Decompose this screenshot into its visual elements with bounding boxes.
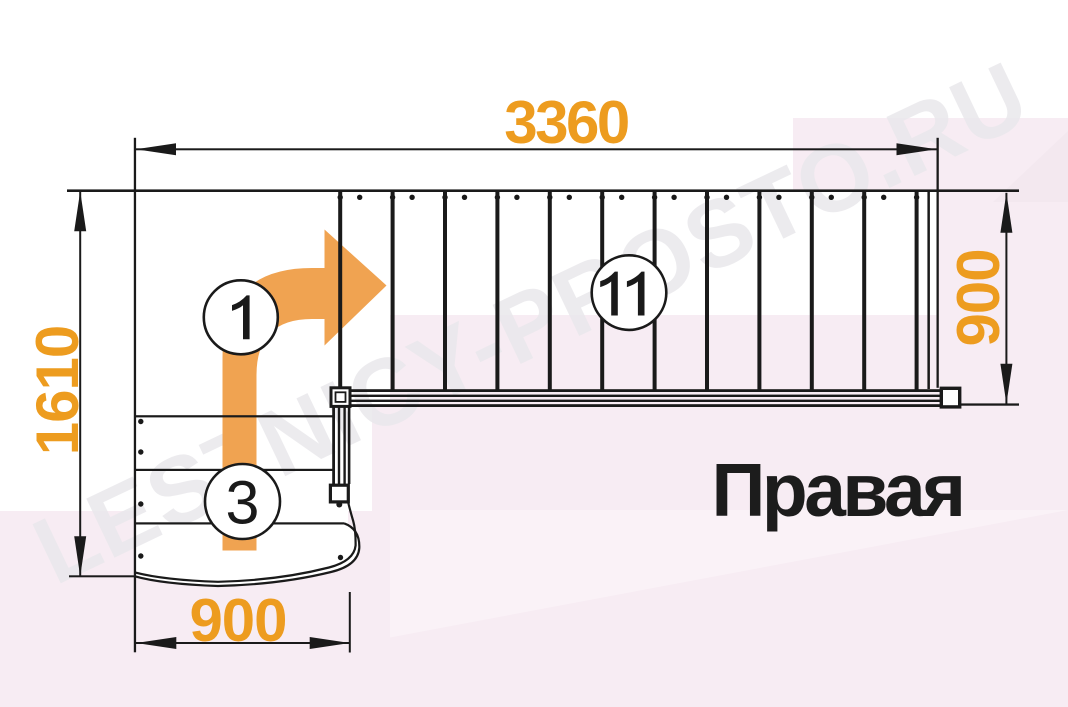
svg-text:1610: 1610 [24, 326, 91, 455]
svg-text:3: 3 [226, 469, 260, 537]
svg-text:Правая: Правая [711, 448, 962, 532]
svg-text:3360: 3360 [504, 89, 628, 156]
svg-text:900: 900 [945, 249, 1012, 346]
svg-text:900: 900 [189, 587, 286, 654]
